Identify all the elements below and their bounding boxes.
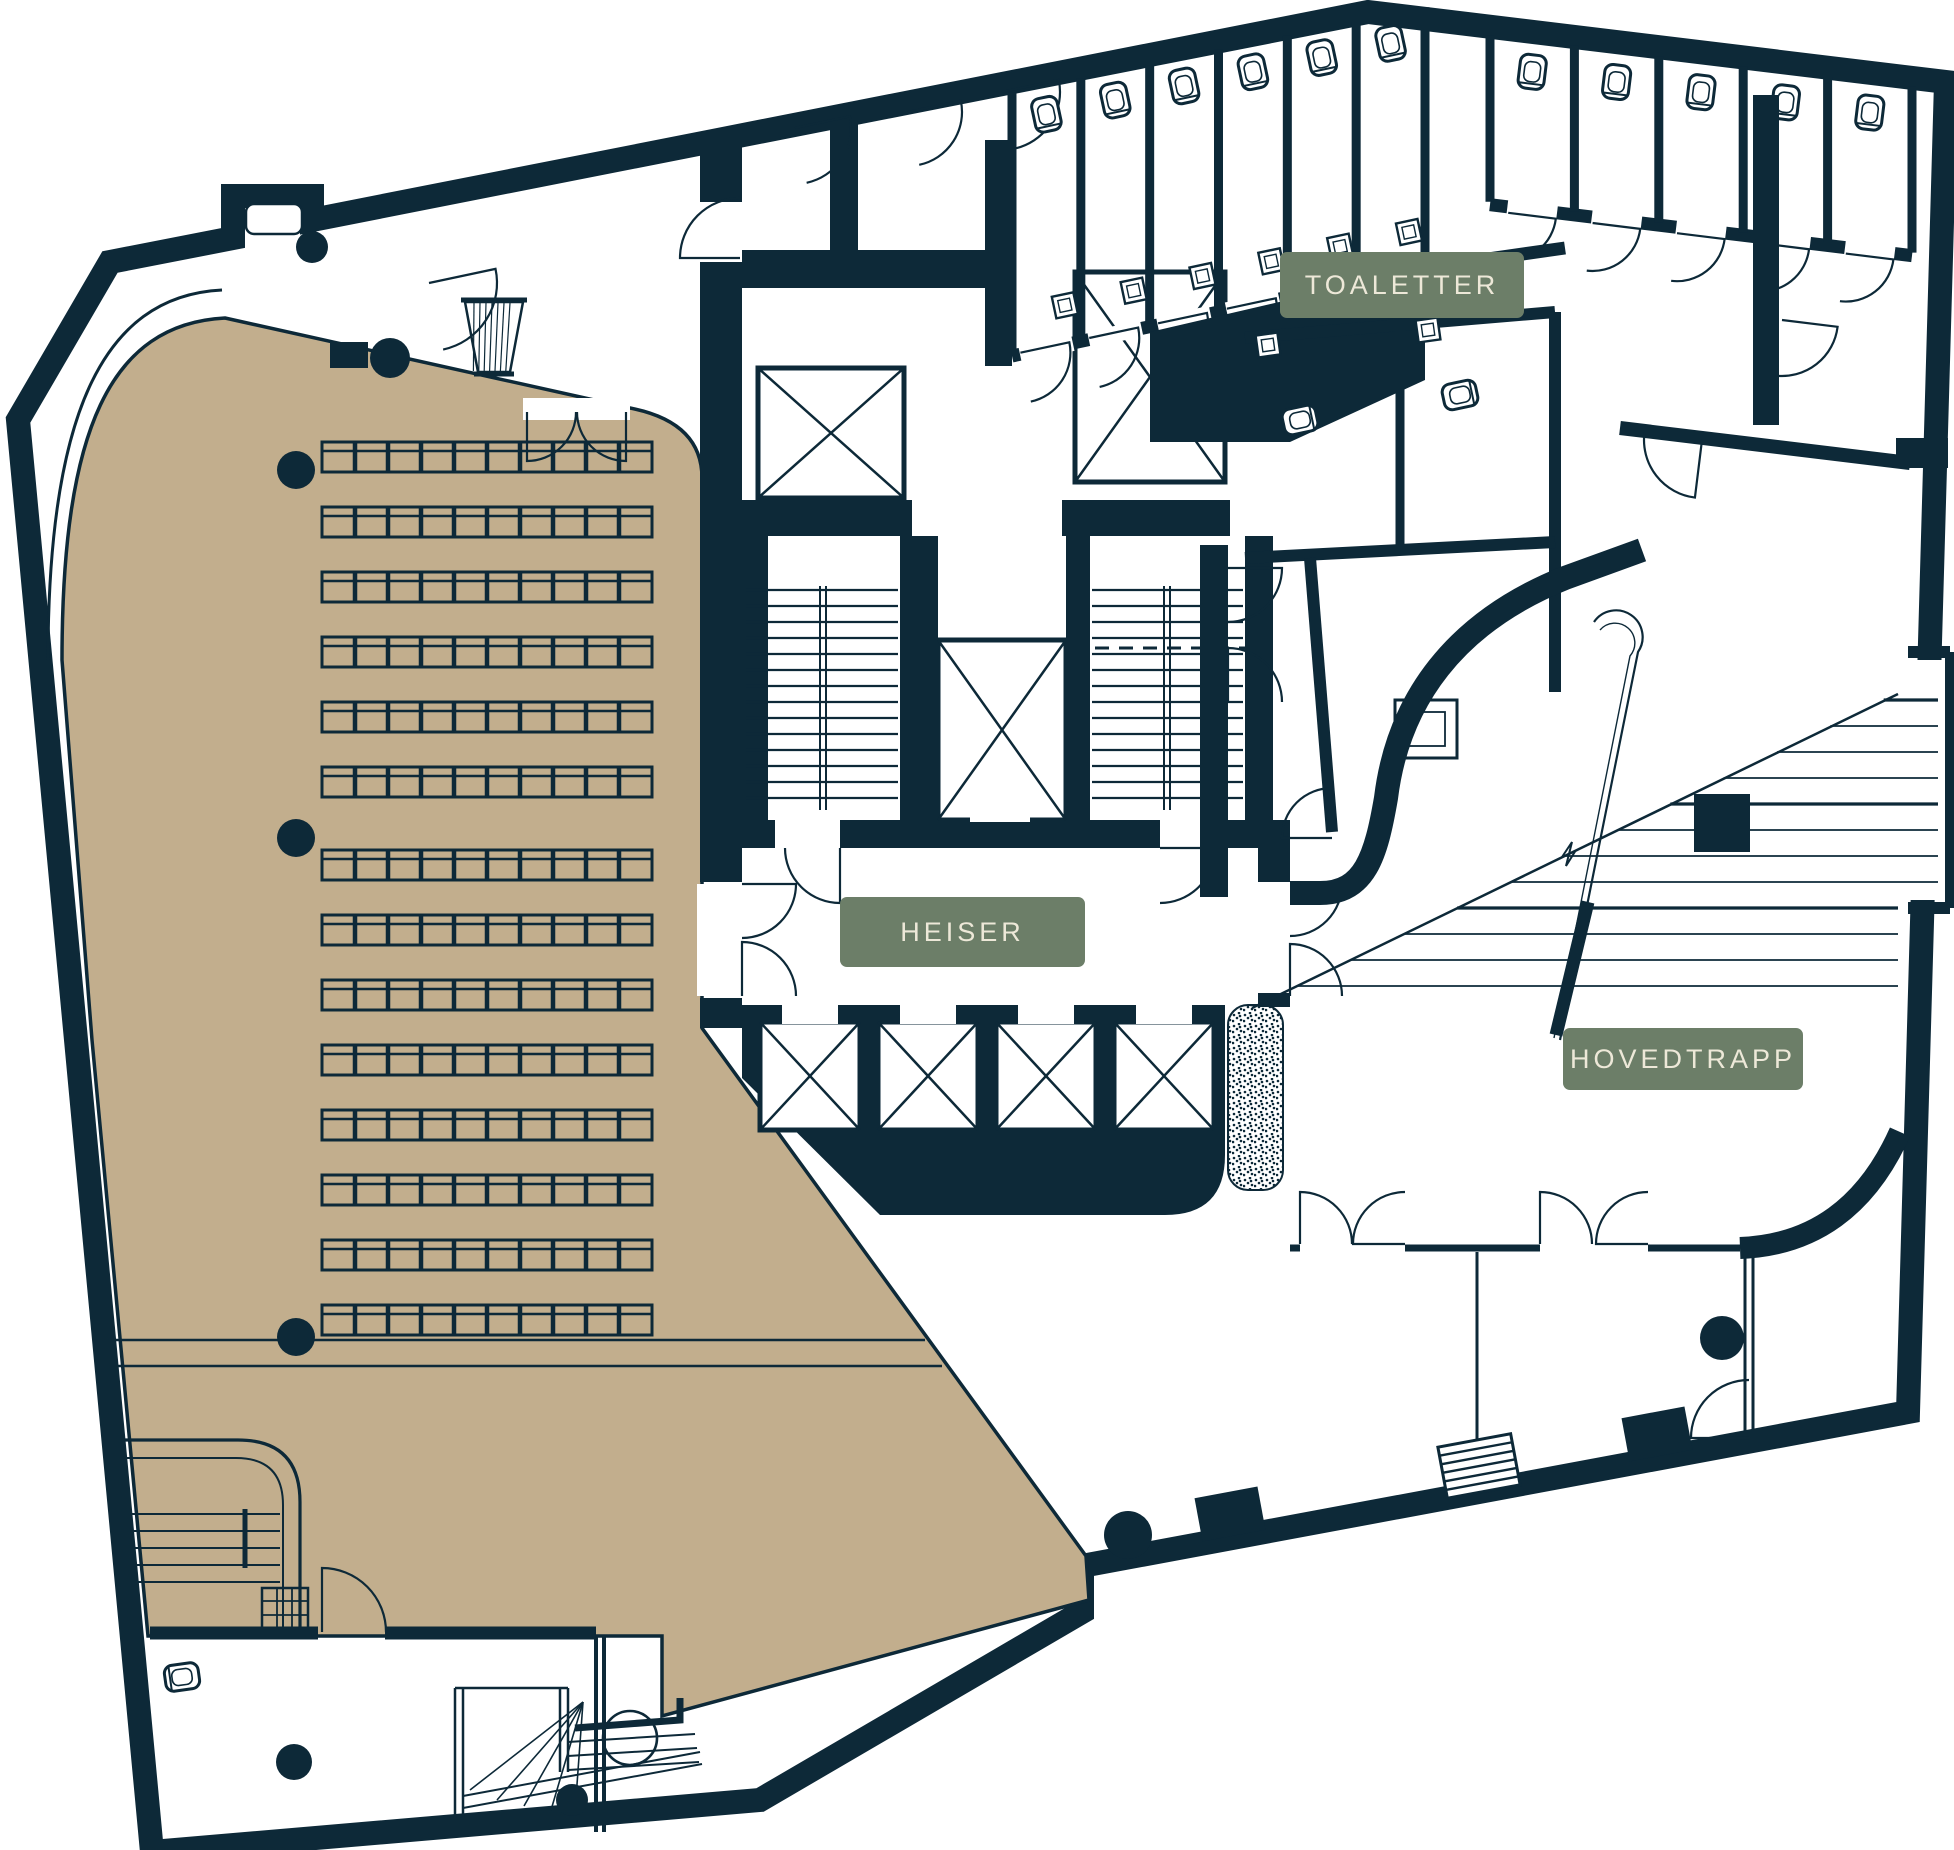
room-label-heiser: HEISER xyxy=(840,897,1085,967)
room-label-toaletter-text: TOALETTER xyxy=(1305,270,1500,301)
floor-plan-canvas: TOALETTER HEISER HOVEDTRAPP xyxy=(0,0,1954,1850)
room-label-hovedtrapp: HOVEDTRAPP xyxy=(1563,1028,1803,1090)
room-label-toaletter: TOALETTER xyxy=(1280,252,1524,318)
room-label-hovedtrapp-text: HOVEDTRAPP xyxy=(1570,1044,1796,1075)
room-label-heiser-text: HEISER xyxy=(900,917,1025,948)
